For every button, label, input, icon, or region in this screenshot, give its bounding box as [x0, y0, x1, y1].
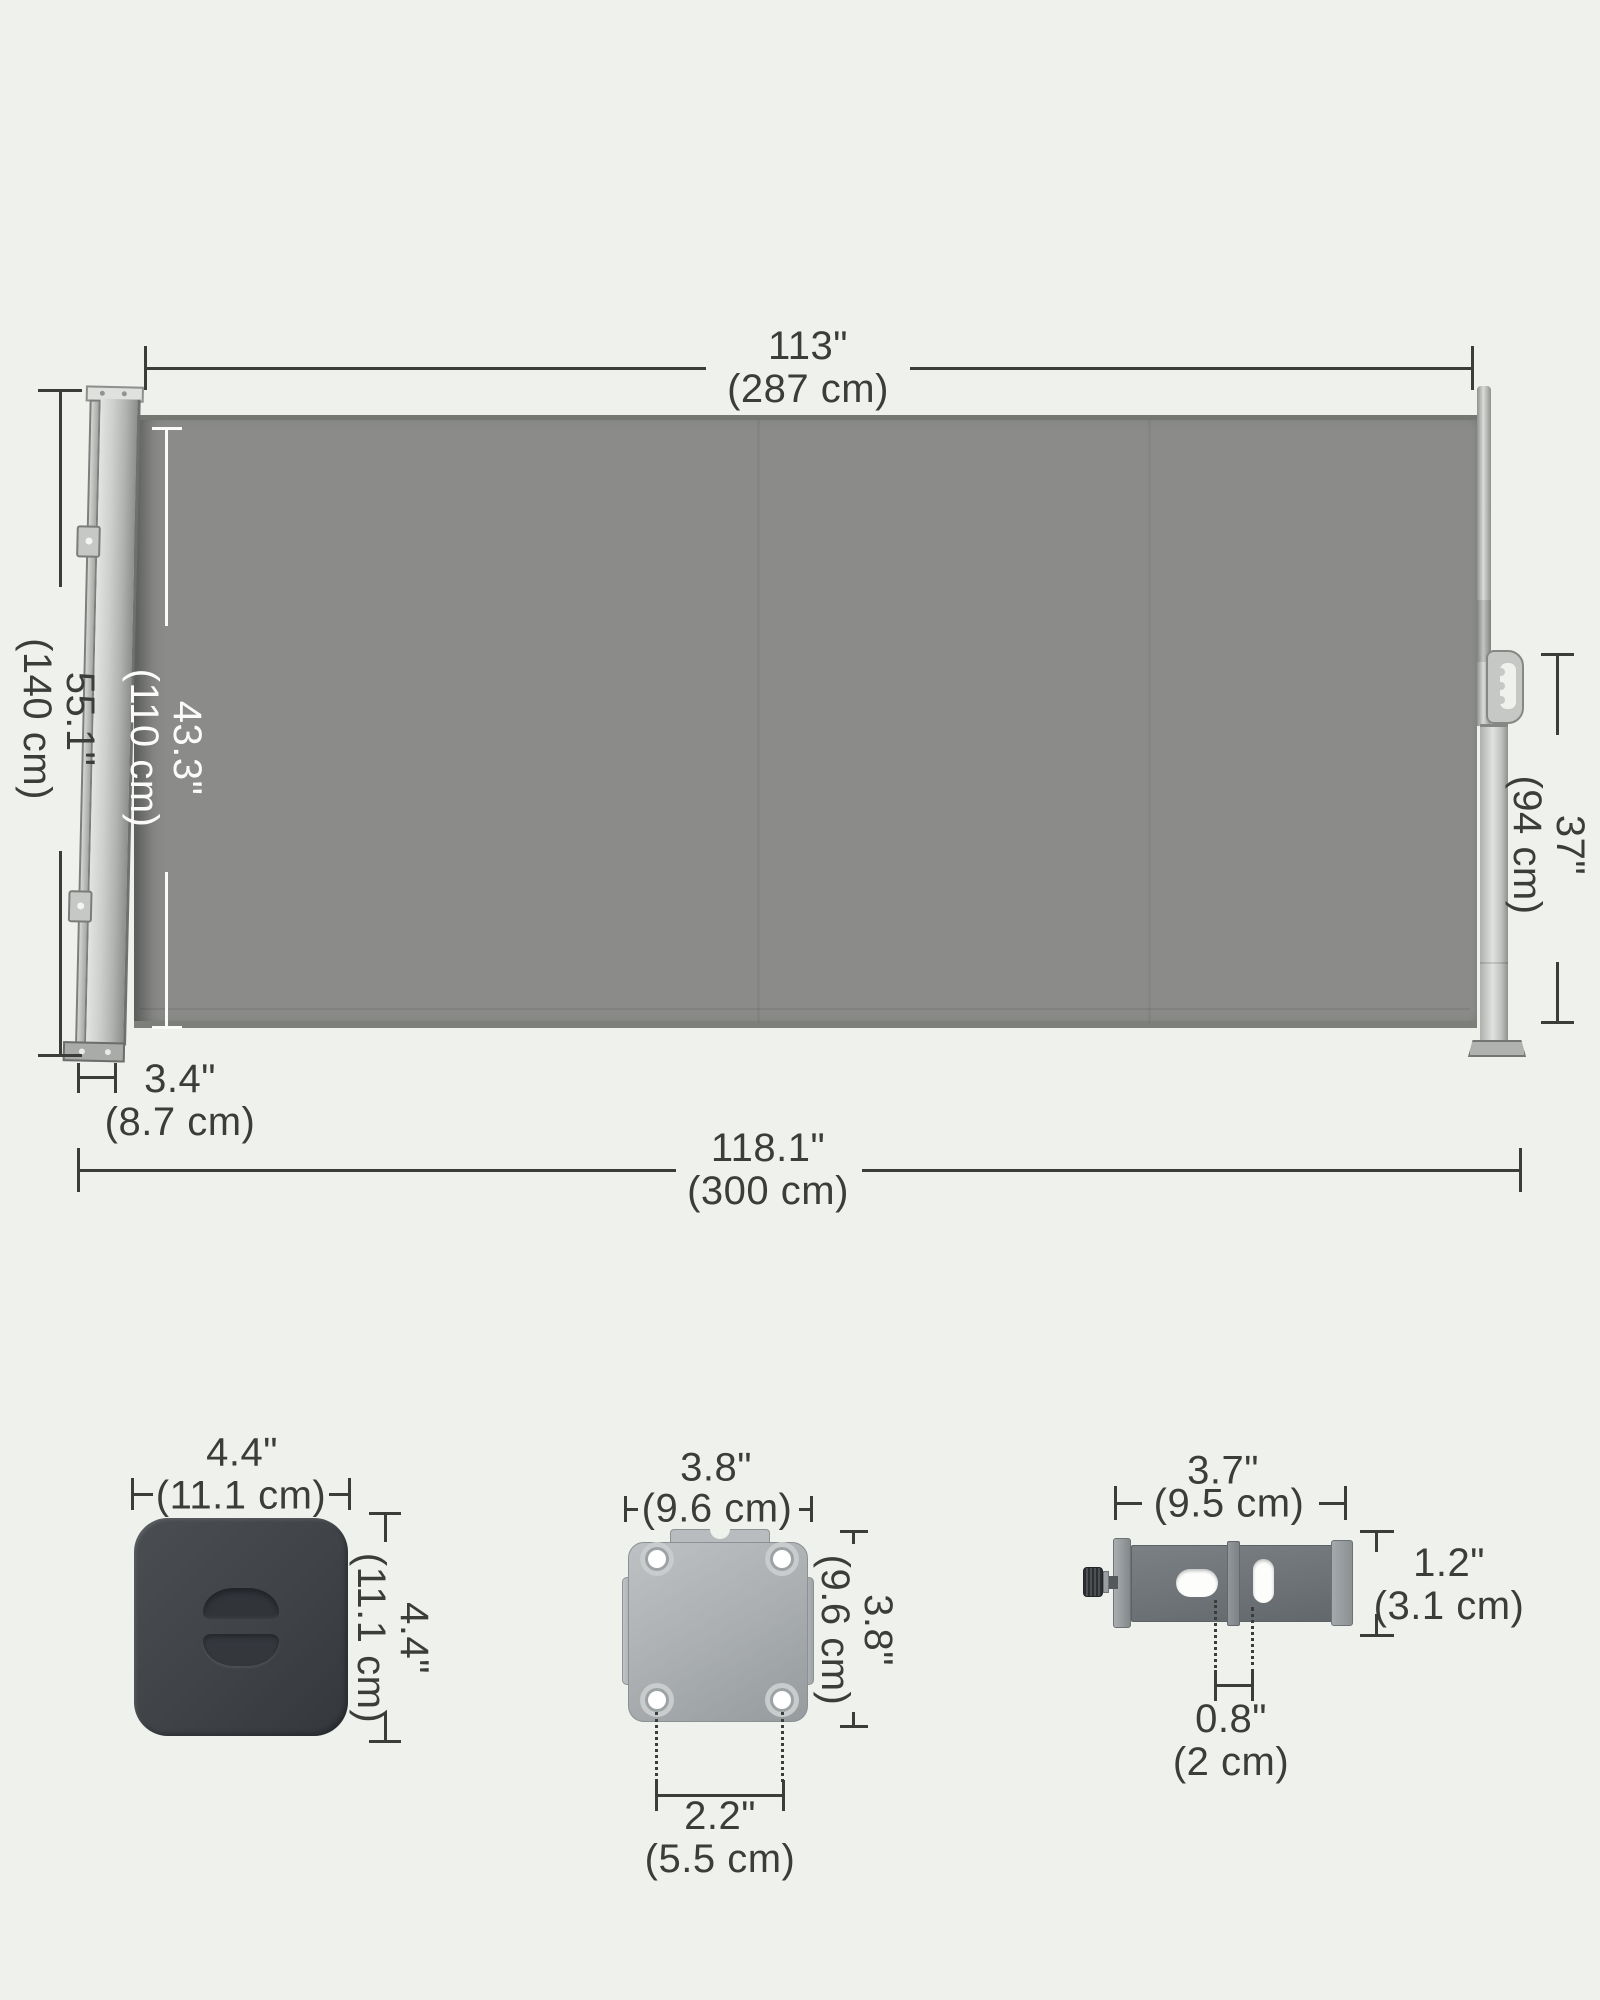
dim-plate-height-label: 3.8" (9.6 cm) [813, 1555, 899, 1706]
housing-base-screw [105, 1049, 111, 1055]
dim-total-height-line [59, 851, 62, 1056]
support-pole-lower [1480, 724, 1508, 1042]
dim-metric: (140 cm) [15, 638, 58, 800]
dim-cap-width-tick-stub [131, 1493, 153, 1496]
dim-inches: 113" [768, 325, 848, 368]
dim-bracket-width-metric: (9.5 cm) [1154, 1483, 1305, 1526]
dim-total-width-label: 118.1" (300 cm) [687, 1127, 849, 1213]
dim-pole-height-line [1556, 962, 1559, 1023]
dim-bracket-height-tick [1360, 1634, 1394, 1637]
dim-inches: 3.8" [856, 1594, 899, 1666]
dim-total-width-tick [1519, 1148, 1522, 1192]
dim-hole-spacing-label: 2.2" (5.5 cm) [645, 1795, 796, 1881]
dim-cap-width-inches: 4.4" [206, 1432, 278, 1475]
dim-total-width-line [78, 1169, 676, 1172]
dim-cap-height-label: 4.4" (11.1 cm) [349, 1553, 435, 1723]
dim-metric: (3.1 cm) [1374, 1585, 1525, 1628]
housing-top-screw [100, 391, 105, 396]
dim-inches: 0.8" [1195, 1698, 1267, 1741]
end-cap-indent-top [203, 1588, 279, 1619]
dim-pole-height-label: 37" (94 cm) [1505, 775, 1591, 914]
pole-foot [1468, 1040, 1526, 1057]
dim-inches: 4.4" [392, 1602, 435, 1674]
fabric-seam [1148, 420, 1151, 1023]
dim-metric: (2 cm) [1173, 1741, 1289, 1784]
plate-screw-hole-center [773, 1550, 791, 1568]
dim-slot-spacing-leader [1214, 1600, 1217, 1673]
dim-housing-depth-label: 3.4" (8.7 cm) [105, 1058, 256, 1144]
dim-metric: (11.1 cm) [349, 1553, 392, 1723]
pole-handle-grip [1497, 682, 1505, 690]
dim-plate-width-tick-stub [624, 1508, 638, 1511]
dim-metric: (94 cm) [1505, 775, 1548, 914]
fabric-hem-line [140, 1008, 1470, 1010]
dim-total-height-label: 55.1" (140 cm) [15, 638, 101, 800]
dim-slot-spacing-line [1215, 1684, 1254, 1687]
dim-metric: (110 cm) [122, 669, 165, 828]
dim-cap-height-tick [369, 1740, 401, 1743]
dim-cap-height-tick-stub [384, 1512, 387, 1542]
dim-pole-height-tick [1541, 653, 1574, 656]
dim-housing-depth-tick [77, 1063, 80, 1093]
plate-screw-hole-center [773, 1691, 791, 1709]
dim-plate-height-tick-stub [852, 1530, 855, 1544]
dim-metric: (8.7 cm) [105, 1101, 256, 1144]
fabric-seam [757, 420, 760, 1023]
pole-handle-grip [1497, 668, 1505, 676]
dim-extension-width-line [145, 367, 706, 370]
dim-cap-width-metric: (11.1 cm) [156, 1475, 326, 1518]
dim-inches: 55.1" [58, 672, 101, 767]
wall-bracket-right-flange [1331, 1540, 1353, 1626]
dim-extension-width-label: 113" (287 cm) [727, 325, 889, 411]
dim-hole-spacing-leader [655, 1712, 658, 1782]
dim-fabric-height-label: 43.3" (110 cm) [122, 669, 208, 828]
dim-bracket-height-label: 1.2" (3.1 cm) [1374, 1542, 1525, 1628]
end-cap [134, 1518, 348, 1736]
dim-metric: (5.5 cm) [645, 1838, 796, 1881]
awning-fabric [134, 415, 1477, 1028]
dim-inches: 2.2" [684, 1795, 756, 1838]
dim-total-width-line [862, 1169, 1520, 1172]
housing-top-screw [122, 391, 127, 396]
pole-handle-grip [1497, 696, 1505, 704]
dim-inches: 3.4" [144, 1058, 216, 1101]
dim-metric: (287 cm) [727, 368, 889, 411]
dim-plate-height-tick [840, 1725, 868, 1728]
dim-fabric-height-tick [152, 427, 182, 430]
awning-dimension-diagram: 113" (287 cm) 55.1" (140 cm) 43.3" (110 … [0, 0, 1600, 2000]
dim-slot-spacing-leader [1251, 1607, 1254, 1673]
dim-plate-width-metric: (9.6 cm) [642, 1488, 793, 1531]
plate-screw-hole-center [648, 1691, 666, 1709]
dim-metric: (9.6 cm) [813, 1555, 856, 1706]
dim-extension-width-tick [1471, 346, 1474, 390]
dim-cap-width-tick-stub [329, 1493, 351, 1496]
dim-extension-width-tick [144, 346, 147, 390]
support-pole-segment-line [1480, 962, 1508, 964]
dim-pole-height-tick [1541, 1021, 1574, 1024]
dim-bracket-width-tick-stub [1319, 1502, 1347, 1505]
dim-metric: (300 cm) [687, 1170, 849, 1213]
dim-plate-height-tick-stub [852, 1712, 855, 1726]
dim-total-height-tick [38, 389, 82, 392]
dim-inches: 1.2" [1413, 1542, 1485, 1585]
dim-total-height-line [59, 391, 62, 587]
dim-extension-width-line [910, 367, 1473, 370]
bracket-knob-shaft [1109, 1576, 1118, 1589]
dim-slot-spacing-label: 0.8" (2 cm) [1173, 1698, 1289, 1784]
dim-inches: 43.3" [165, 701, 208, 796]
dim-fabric-height-line [165, 430, 168, 626]
plate-screw-hole-center [648, 1550, 666, 1568]
dim-pole-height-line [1556, 655, 1559, 735]
pole-handle [1486, 650, 1524, 724]
dim-total-width-tick [77, 1148, 80, 1192]
dim-fabric-height-tick [152, 1026, 182, 1029]
bracket-slot-horizontal [1176, 1569, 1218, 1597]
dim-bracket-height-tick-stub [1375, 1614, 1378, 1636]
dim-inches: 118.1" [711, 1127, 825, 1170]
bracket-knob-head [1083, 1567, 1103, 1597]
dim-fabric-height-line [165, 872, 168, 1027]
dim-hole-spacing-leader [781, 1712, 784, 1782]
dim-inches: 37" [1548, 815, 1591, 875]
dim-plate-width-tick-stub [799, 1508, 813, 1511]
dim-plate-width-inches: 3.8" [680, 1447, 752, 1490]
bracket-slot-vertical [1253, 1559, 1274, 1603]
dim-cap-height-tick-stub [384, 1712, 387, 1742]
dim-bracket-width-tick-stub [1114, 1502, 1142, 1505]
dim-total-height-tick [38, 1054, 82, 1057]
wall-bracket-divider [1227, 1541, 1240, 1626]
